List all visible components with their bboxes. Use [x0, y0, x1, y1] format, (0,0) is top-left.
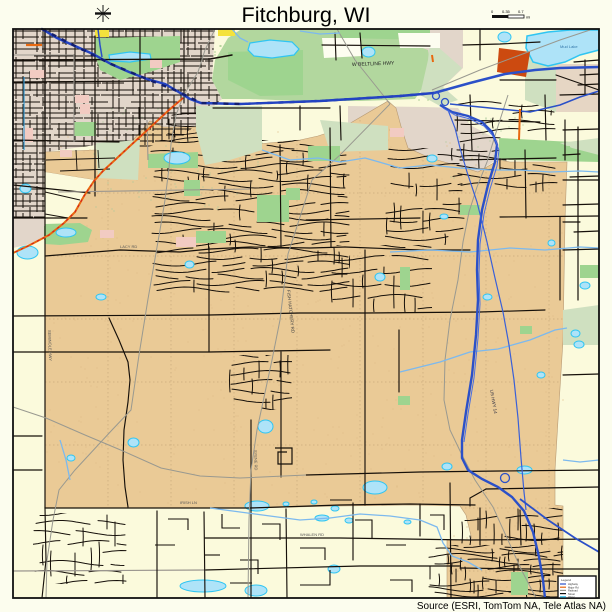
svg-text:0.7: 0.7: [518, 9, 524, 14]
svg-text:mi: mi: [526, 15, 530, 20]
svg-text:SYENE RD: SYENE RD: [253, 450, 259, 471]
svg-text:Water: Water: [568, 595, 575, 599]
svg-text:IRISH LN: IRISH LN: [180, 500, 197, 505]
svg-text:WHALEN RD: WHALEN RD: [300, 532, 324, 537]
svg-text:Source (ESRI, TomTom NA, Tele: Source (ESRI, TomTom NA, Tele Atlas NA): [417, 601, 606, 612]
svg-text:0.35: 0.35: [502, 9, 511, 14]
svg-text:Legend: Legend: [561, 578, 571, 582]
svg-text:LACY RD: LACY RD: [120, 244, 137, 249]
svg-text:Fitchburg, WI: Fitchburg, WI: [242, 2, 371, 27]
svg-text:Mud Lake: Mud Lake: [560, 44, 578, 49]
